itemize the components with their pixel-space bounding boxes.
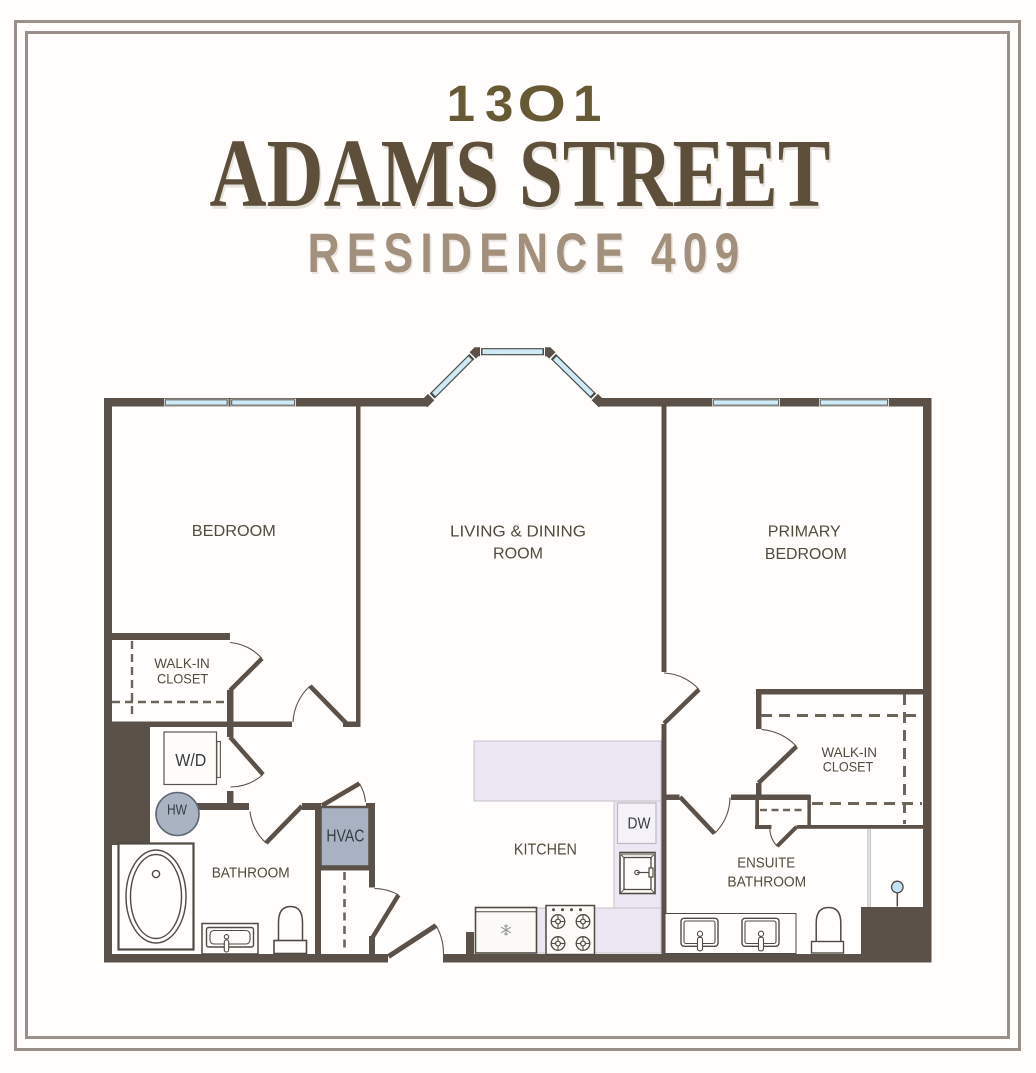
svg-text:BEDROOM: BEDROOM [765,546,847,563]
svg-text:LIVING & DINING: LIVING & DINING [450,524,586,541]
svg-text:WALK-IN: WALK-IN [154,655,210,671]
svg-text:ENSUITE: ENSUITE [737,856,795,872]
svg-text:W/D: W/D [175,750,206,770]
svg-text:PRIMARY: PRIMARY [768,523,841,540]
svg-text:DW: DW [628,816,651,833]
svg-text:HVAC: HVAC [326,826,364,846]
svg-text:BEDROOM: BEDROOM [192,523,276,540]
svg-text:BATHROOM: BATHROOM [727,875,806,891]
svg-text:HW: HW [167,802,188,819]
svg-text:BATHROOM: BATHROOM [212,865,290,881]
svg-text:KITCHEN: KITCHEN [514,842,577,859]
svg-text:CLOSET: CLOSET [823,759,874,775]
svg-text:CLOSET: CLOSET [157,670,209,686]
svg-text:ROOM: ROOM [493,546,543,563]
